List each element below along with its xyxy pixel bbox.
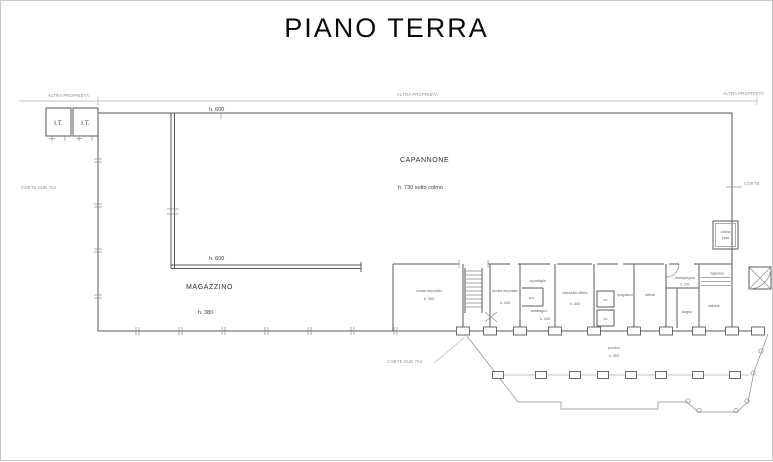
weigh-cabin-label-line2: pesa [722,236,729,240]
magazzino-label: MAGAZZINO [186,284,233,291]
ufficio-label: ufficio [645,293,655,297]
magazzino-height-label: h. 380 [198,310,213,316]
weigh-cabin-label-line1: cabina [721,230,731,234]
deposito1-label: locale deposito [416,289,441,293]
staircase [465,268,497,322]
corte-label-left: CORTE SUB 704 [21,185,57,190]
deposito2-label: locale deposito [492,289,517,293]
antibagno-height: h. 240 [540,317,551,321]
deposito-ufficio-label: deposito ufficio [562,291,587,295]
wc-small-label: w.c. [529,296,536,300]
bagno-label: bagno [682,310,693,314]
it-room-label-right: I.T. [81,120,90,127]
entrance-steps [701,278,731,286]
it-room-label-left: I.T. [54,120,63,127]
deposito1-height: h. 300 [424,297,435,301]
office-wing-walls [393,260,732,331]
portico-label: portico [608,346,619,350]
drawing-sheet: PIANO TERRA ALTRA PROPRIETA' ALTRA PROPR… [0,0,773,461]
room7-partitions [666,264,699,328]
wc-a-label: wc [603,298,607,302]
wc-b-label: wc [603,317,607,321]
crossed-box [749,267,771,289]
deposito2-height: h. 240 [500,301,511,305]
altra-proprieta-label-left: ALTRA PROPRIETA' [48,93,90,98]
disimpegno-label: disimpegno [675,276,694,280]
deposito-ufficio-height: h. 300 [570,302,581,306]
capannone-label: CAPANNONE [400,157,449,164]
it-rooms: I.T. I.T. [46,108,98,141]
disimpegno-height: h. 240 [680,283,689,287]
ripostiglio-label: ripostiglio [530,279,546,283]
altra-proprieta-label-center: ALTRA PROPRIETA' [397,92,439,97]
beam-height-label-mid: h. 600 [209,256,224,262]
spogliatoio-label: spogliatoio [617,293,633,297]
interior-walls [167,113,361,272]
weigh-cabin: cabina pesa [713,221,738,249]
floor-plan-canvas: ALTRA PROPRIETA' ALTRA PROPRIETA' ALTRA … [1,1,773,462]
ingresso-label: ingresso [710,272,724,276]
portico-outline [434,334,768,413]
antibagno-label: antibagno [531,309,548,313]
portico-height: h. 300 [609,354,620,358]
corte-label-right: CORTE [744,181,760,186]
property-boundary-line [19,97,757,105]
beam-height-label-top: h. 600 [209,107,224,113]
salone-label: salone [708,304,719,308]
capannone-height-label: h. 730 sotto colmo [398,185,443,191]
altra-proprieta-label-right: ALTRA PROPRIETA' [723,91,765,96]
corte-label-bottom: CORTE SUB 704 [387,359,423,364]
